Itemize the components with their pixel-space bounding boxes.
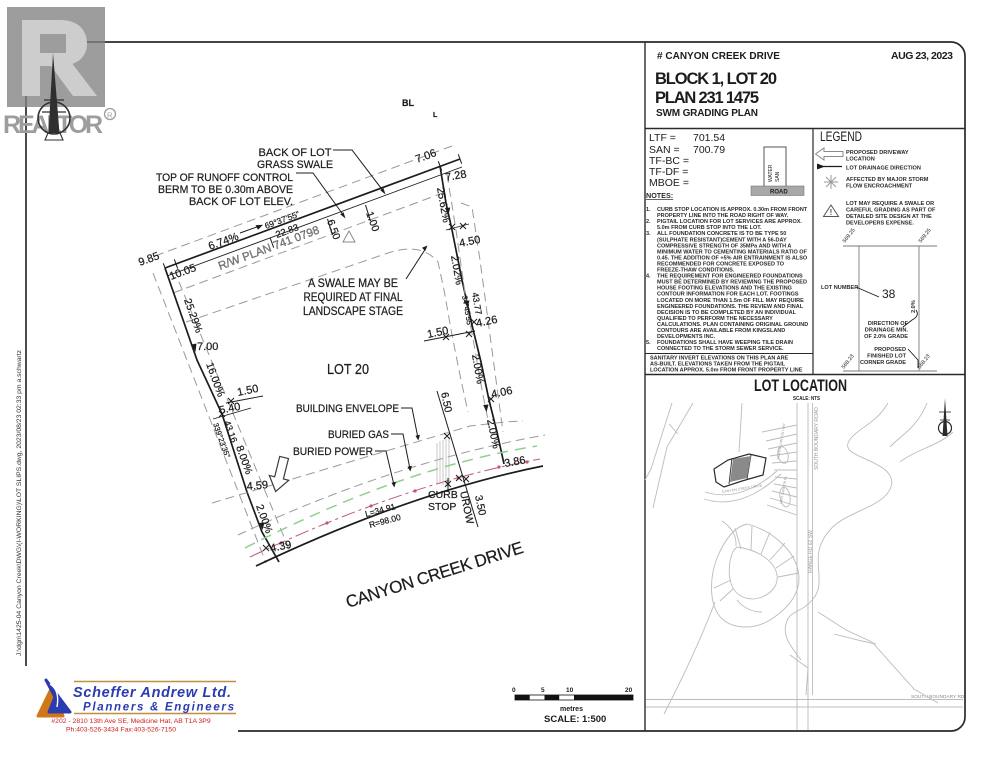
svg-text:SCALE: 1:500: SCALE: 1:500 bbox=[544, 714, 606, 725]
svg-text:BLOCK 1, LOT 20: BLOCK 1, LOT 20 bbox=[655, 70, 777, 88]
svg-text:GRASS SWALE: GRASS SWALE bbox=[257, 159, 333, 171]
svg-text:COMPRESSIVE STRENGTH OF 35MPa: COMPRESSIVE STRENGTH OF 35MPa AND WITH A bbox=[657, 243, 791, 249]
svg-text:5: 5 bbox=[541, 687, 545, 694]
svg-text:TOP OF RUNOFF CONTROL: TOP OF RUNOFF CONTROL bbox=[156, 172, 293, 184]
svg-text:# CANYON CREEK DRIVE: # CANYON CREEK DRIVE bbox=[657, 50, 780, 62]
svg-text:20: 20 bbox=[625, 687, 633, 694]
svg-text:3.: 3. bbox=[646, 231, 651, 237]
svg-text:QUALIFIED TO PERFORM THE NECES: QUALIFIED TO PERFORM THE NECESSARY bbox=[657, 316, 773, 322]
svg-text:CAREFUL GRADING AS PART OF: CAREFUL GRADING AS PART OF bbox=[846, 208, 936, 214]
svg-text:2.0%: 2.0% bbox=[911, 300, 917, 313]
svg-text:BURIED POWER: BURIED POWER bbox=[293, 446, 373, 458]
svg-text:SWM GRADING PLAN: SWM GRADING PLAN bbox=[656, 108, 758, 119]
svg-text:BACK OF LOT: BACK OF LOT bbox=[259, 147, 332, 159]
svg-text:LEGEND: LEGEND bbox=[820, 129, 862, 144]
svg-text:10: 10 bbox=[566, 687, 574, 694]
svg-text:DETAILED SITE DESIGN AT THE: DETAILED SITE DESIGN AT THE bbox=[846, 214, 932, 220]
svg-text:7.00: 7.00 bbox=[197, 341, 218, 353]
svg-text:LOT MAY REQUIRE A SWALE OR: LOT MAY REQUIRE A SWALE OR bbox=[846, 201, 934, 207]
svg-text:#202 - 2810 13th Ave SE, Medic: #202 - 2810 13th Ave SE, Medicine Hat, A… bbox=[51, 718, 210, 725]
svg-text:SAN: SAN bbox=[775, 171, 781, 182]
svg-text:SCALE: NTS: SCALE: NTS bbox=[793, 396, 820, 402]
svg-text:CURB STOP LOCATION IS APPROX.: CURB STOP LOCATION IS APPROX. 0.30m FROM… bbox=[657, 207, 808, 213]
svg-text:BURIED GAS: BURIED GAS bbox=[328, 429, 389, 441]
svg-text:2.: 2. bbox=[646, 219, 651, 225]
svg-text:FREEZE-THAW CONDITIONS.: FREEZE-THAW CONDITIONS. bbox=[657, 268, 735, 274]
svg-text:Scheffer Andrew Ltd.: Scheffer Andrew Ltd. bbox=[73, 685, 231, 701]
svg-text:LOT LOCATION: LOT LOCATION bbox=[754, 377, 847, 395]
svg-text:NOTES:: NOTES: bbox=[646, 191, 673, 200]
svg-text:A SWALE MAY BE: A SWALE MAY BE bbox=[308, 278, 398, 290]
svg-text:BL: BL bbox=[402, 98, 414, 108]
svg-text:LOT NUMBER: LOT NUMBER bbox=[821, 285, 858, 291]
svg-text:CORNER GRADE: CORNER GRADE bbox=[860, 360, 906, 366]
svg-text:LOT 20: LOT 20 bbox=[327, 362, 369, 378]
svg-text:DRAINAGE MIN.: DRAINAGE MIN. bbox=[865, 328, 909, 334]
svg-text:PIGTAIL LOCATION FOR LOT SERVI: PIGTAIL LOCATION FOR LOT SERVICES ARE AP… bbox=[657, 219, 802, 225]
svg-text:OF 2.0% GRADE: OF 2.0% GRADE bbox=[864, 334, 908, 340]
svg-text:MUST BE DETERMINED BY REVIEWIN: MUST BE DETERMINED BY REVIEWING THE PROP… bbox=[657, 280, 807, 286]
svg-text:38: 38 bbox=[882, 287, 896, 301]
svg-text:FLOW ENCROACHMENT: FLOW ENCROACHMENT bbox=[846, 184, 913, 190]
svg-text:CONTOURS ARE AVAILABLE FROM KI: CONTOURS ARE AVAILABLE FROM KINGSLAND bbox=[657, 328, 785, 334]
svg-text:STOP: STOP bbox=[428, 501, 456, 513]
svg-text:BERM TO BE 0.30m ABOVE: BERM TO BE 0.30m ABOVE bbox=[158, 184, 293, 196]
svg-text:4.59: 4.59 bbox=[246, 479, 268, 493]
svg-text:FINISHED LOT: FINISHED LOT bbox=[867, 354, 906, 360]
svg-text:LOCATION: LOCATION bbox=[846, 157, 875, 163]
svg-text:SOUTH BOUNDARY RD: SOUTH BOUNDARY RD bbox=[911, 694, 965, 700]
svg-text:LTF =: LTF = bbox=[649, 132, 676, 144]
svg-text:L: L bbox=[433, 112, 438, 119]
svg-text:700.79: 700.79 bbox=[693, 144, 725, 156]
svg-text:ROAD: ROAD bbox=[770, 190, 788, 196]
svg-text:J:\dgn\1425-04 Canyon Creek\: J:\dgn\1425-04 Canyon Creek\DWG\(I-WORKI… bbox=[16, 349, 23, 656]
svg-text:CONTOUR INFORMATION FOR EACH L: CONTOUR INFORMATION FOR EACH LOT. FOOTIN… bbox=[657, 292, 799, 298]
svg-text:WATER: WATER bbox=[768, 164, 774, 182]
svg-text:BACK OF LOT ELEV.: BACK OF LOT ELEV. bbox=[189, 196, 293, 208]
svg-text:DEVELOPERS EXPENSE.: DEVELOPERS EXPENSE. bbox=[846, 221, 914, 227]
svg-text:1.: 1. bbox=[646, 207, 651, 213]
svg-text:CONNECTED TO THE STORM SEWER S: CONNECTED TO THE STORM SEWER SERVICE. bbox=[657, 346, 784, 352]
svg-text:5.: 5. bbox=[646, 340, 651, 346]
svg-text:AFFECTED BY MAJOR STORM: AFFECTED BY MAJOR STORM bbox=[846, 177, 929, 183]
svg-text:PROPOSED DRIVEWAY: PROPOSED DRIVEWAY bbox=[846, 150, 909, 156]
svg-text:FOUNDATIONS SHALL HAVE WEEPING: FOUNDATIONS SHALL HAVE WEEPING TILE DRAI… bbox=[657, 340, 793, 346]
svg-text:MBOE =: MBOE = bbox=[649, 177, 689, 189]
svg-text:Ph:403-526-3434 Fax:403-526: Ph:403-526-3434 Fax:403-526-7150 bbox=[66, 727, 176, 734]
svg-text:LOCATION APPROX. 5.0m FROM FRO: LOCATION APPROX. 5.0m FROM FRONT PROPERT… bbox=[650, 368, 803, 374]
svg-text:RANGE RD 62 SW: RANGE RD 62 SW bbox=[808, 530, 814, 573]
svg-text:PLAN 231 1475: PLAN 231 1475 bbox=[655, 89, 759, 107]
svg-text:ENGINEERED FOUNDATIONS. THE RE: ENGINEERED FOUNDATIONS. THE REVIEW AND F… bbox=[657, 304, 804, 310]
svg-text:701.54: 701.54 bbox=[693, 132, 725, 144]
svg-text:BUILDING ENVELOPE: BUILDING ENVELOPE bbox=[296, 403, 399, 415]
svg-text:!: ! bbox=[830, 208, 833, 217]
svg-text:0.45. THE ADDITION OF +5% AIR: 0.45. THE ADDITION OF +5% AIR ENTRAINMEN… bbox=[657, 255, 808, 261]
svg-text:CURB: CURB bbox=[428, 489, 458, 501]
svg-text:PROPOSED: PROPOSED bbox=[874, 347, 906, 353]
svg-text:LANDSCAPE STAGE: LANDSCAPE STAGE bbox=[303, 306, 403, 318]
svg-text:metres: metres bbox=[560, 706, 583, 713]
svg-text:AUG 23, 2023: AUG 23, 2023 bbox=[891, 50, 953, 62]
svg-text:R: R bbox=[107, 111, 113, 120]
svg-text:DIRECTION OF: DIRECTION OF bbox=[868, 321, 909, 327]
svg-text:REQUIRED AT FINAL: REQUIRED AT FINAL bbox=[304, 292, 404, 304]
svg-text:ALL FOUNDATION CONCRETE IS TO: ALL FOUNDATION CONCRETE IS TO BE TYPE 50 bbox=[657, 231, 786, 237]
svg-text:4.: 4. bbox=[646, 274, 651, 280]
svg-text:LOT DRAINAGE DIRECTION: LOT DRAINAGE DIRECTION bbox=[846, 166, 921, 172]
svg-text:SOUTH BOUNDARY ROAD: SOUTH BOUNDARY ROAD bbox=[814, 407, 820, 470]
svg-text:0: 0 bbox=[512, 687, 516, 694]
